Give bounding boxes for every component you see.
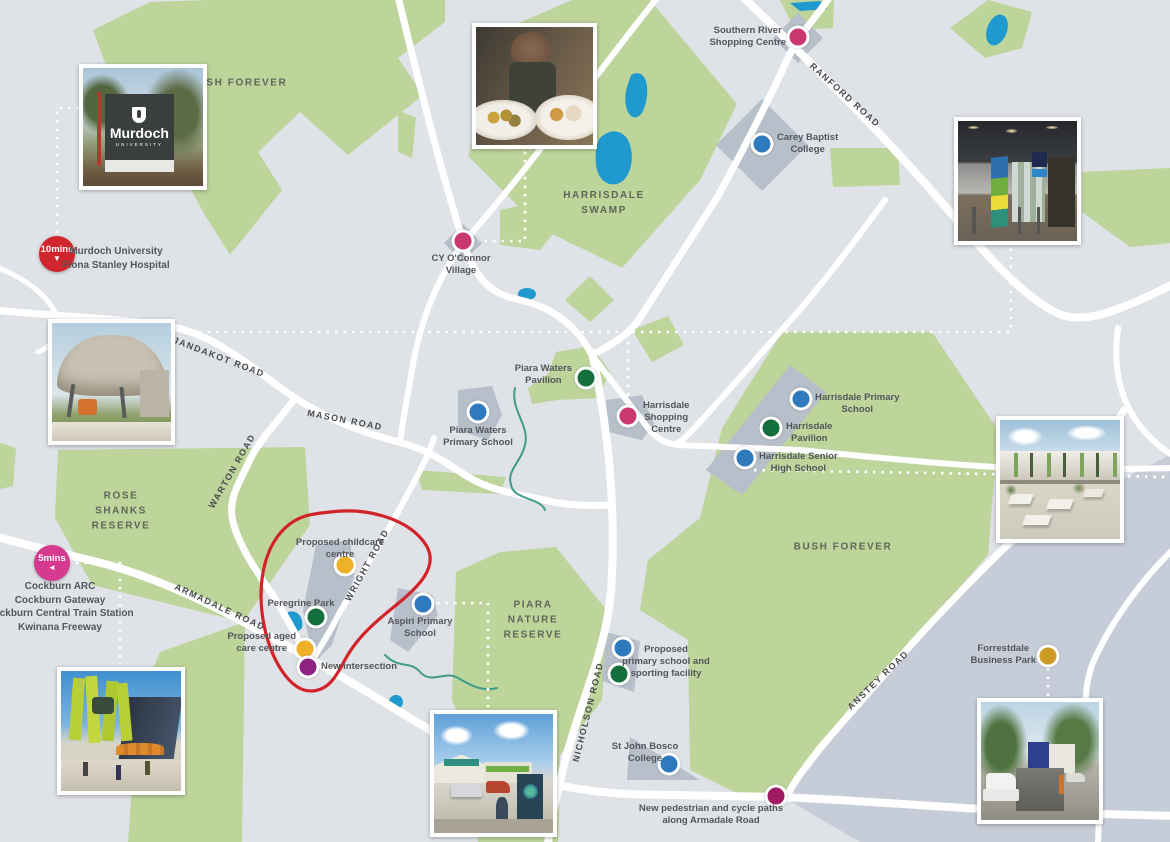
travel-pin-5mins: 5mins ◄ — [34, 545, 70, 581]
poi-label-aspiri-primary-school: Aspiri Primary School — [388, 616, 453, 640]
poi-label-st-john-bosco-college: St John Bosco College — [612, 741, 679, 765]
area-label-harrisdale-swamp: HARRISDALE SWAMP — [563, 188, 645, 218]
travel-pin-10mins-arrow-icon: ▼ — [53, 255, 61, 263]
poi-label-proposed-primary-school-sporting: Proposed primary school and sporting fac… — [622, 644, 710, 680]
poi-label-cy-oconnor-village: CY O'Connor Village — [431, 253, 490, 277]
poi-label-new-pedestrian-cycle-paths: New pedestrian and cycle paths along Arm… — [639, 803, 783, 827]
murdoch-shield-icon — [132, 107, 146, 123]
poi-dot-piara-waters-primary-school — [467, 401, 490, 424]
travel-pin-5mins-time: 5mins — [38, 554, 65, 564]
poi-dot-harrisdale-pavilion — [760, 417, 783, 440]
photo-tavern-food — [472, 23, 597, 149]
poi-dot-harrisdale-primary-school — [790, 388, 813, 411]
poi-label-proposed-childcare-centre: Proposed childcare centre — [296, 537, 384, 561]
travel-pin-5mins-destinations: Cockburn ARC Cockburn Gateway Cockburn C… — [0, 580, 134, 634]
photo-shopping-centre-interior — [954, 117, 1081, 245]
poi-label-forrestdale-business-park: Forrestdale Business Park — [971, 643, 1036, 667]
photo-murdoch-university-sign: Murdoch UNIVERSITY — [79, 64, 207, 190]
poi-dot-harrisdale-shopping-centre — [617, 405, 640, 428]
poi-label-peregrine-park: Peregrine Park — [267, 598, 334, 610]
area-label-piara-nature-reserve: PIARA NATURE RESERVE — [504, 598, 563, 643]
poi-label-piara-waters-primary-school: Piara Waters Primary School — [443, 425, 513, 449]
poi-dot-southern-river-shopping-centre — [787, 26, 810, 49]
poi-dot-piara-waters-pavilion — [575, 367, 598, 390]
poi-dot-forrestdale-business-park — [1037, 645, 1060, 668]
poi-label-harrisdale-shopping-centre: Harrisdale Shopping Centre — [643, 400, 689, 436]
poi-label-piara-waters-pavilion: Piara Waters Pavilion — [515, 363, 572, 387]
poi-label-harrisdale-primary-school: Harrisdale Primary School — [815, 392, 900, 416]
murdoch-sign: Murdoch UNIVERSITY — [105, 94, 175, 160]
poi-label-new-intersection: New intersection — [321, 661, 397, 673]
poi-label-southern-river-shopping-centre: Southern River Shopping Centre — [709, 25, 786, 49]
photo-park-pavilion — [48, 319, 175, 445]
poi-label-carey-baptist-college: Carey Baptist College — [777, 132, 838, 156]
poi-dot-cy-oconnor-village — [452, 230, 475, 253]
poi-dot-aspiri-primary-school — [412, 593, 435, 616]
photo-school-courtyard — [996, 416, 1124, 543]
poi-dot-harrisdale-senior-high-school — [734, 447, 757, 470]
area-label-bush-forever-east: BUSH FOREVER — [794, 540, 893, 555]
poi-dot-new-intersection — [297, 656, 320, 679]
poi-label-harrisdale-senior-high-school: Harrisdale Senior High School — [759, 451, 838, 475]
photo-forrestdale-street — [977, 698, 1103, 824]
location-map: BUSH FOREVER HARRISDALE SWAMP ROSE SHANK… — [0, 0, 1170, 842]
photo-cockburn-gateway — [57, 667, 185, 795]
poi-dot-carey-baptist-college — [751, 133, 774, 156]
travel-pin-10mins-destinations: Murdoch University Fiona Stanley Hospita… — [62, 245, 169, 272]
area-label-rose-shanks-reserve: ROSE SHANKS RESERVE — [92, 489, 151, 534]
murdoch-sign-subtitle: UNIVERSITY — [116, 142, 163, 147]
murdoch-sign-name: Murdoch — [110, 126, 169, 141]
photo-aspiri-school-building — [430, 710, 557, 837]
poi-label-proposed-aged-care-centre: Proposed aged care centre — [227, 631, 296, 655]
travel-pin-5mins-arrow-icon: ◄ — [48, 564, 56, 572]
poi-label-harrisdale-pavilion: Harrisdale Pavilion — [786, 421, 832, 445]
